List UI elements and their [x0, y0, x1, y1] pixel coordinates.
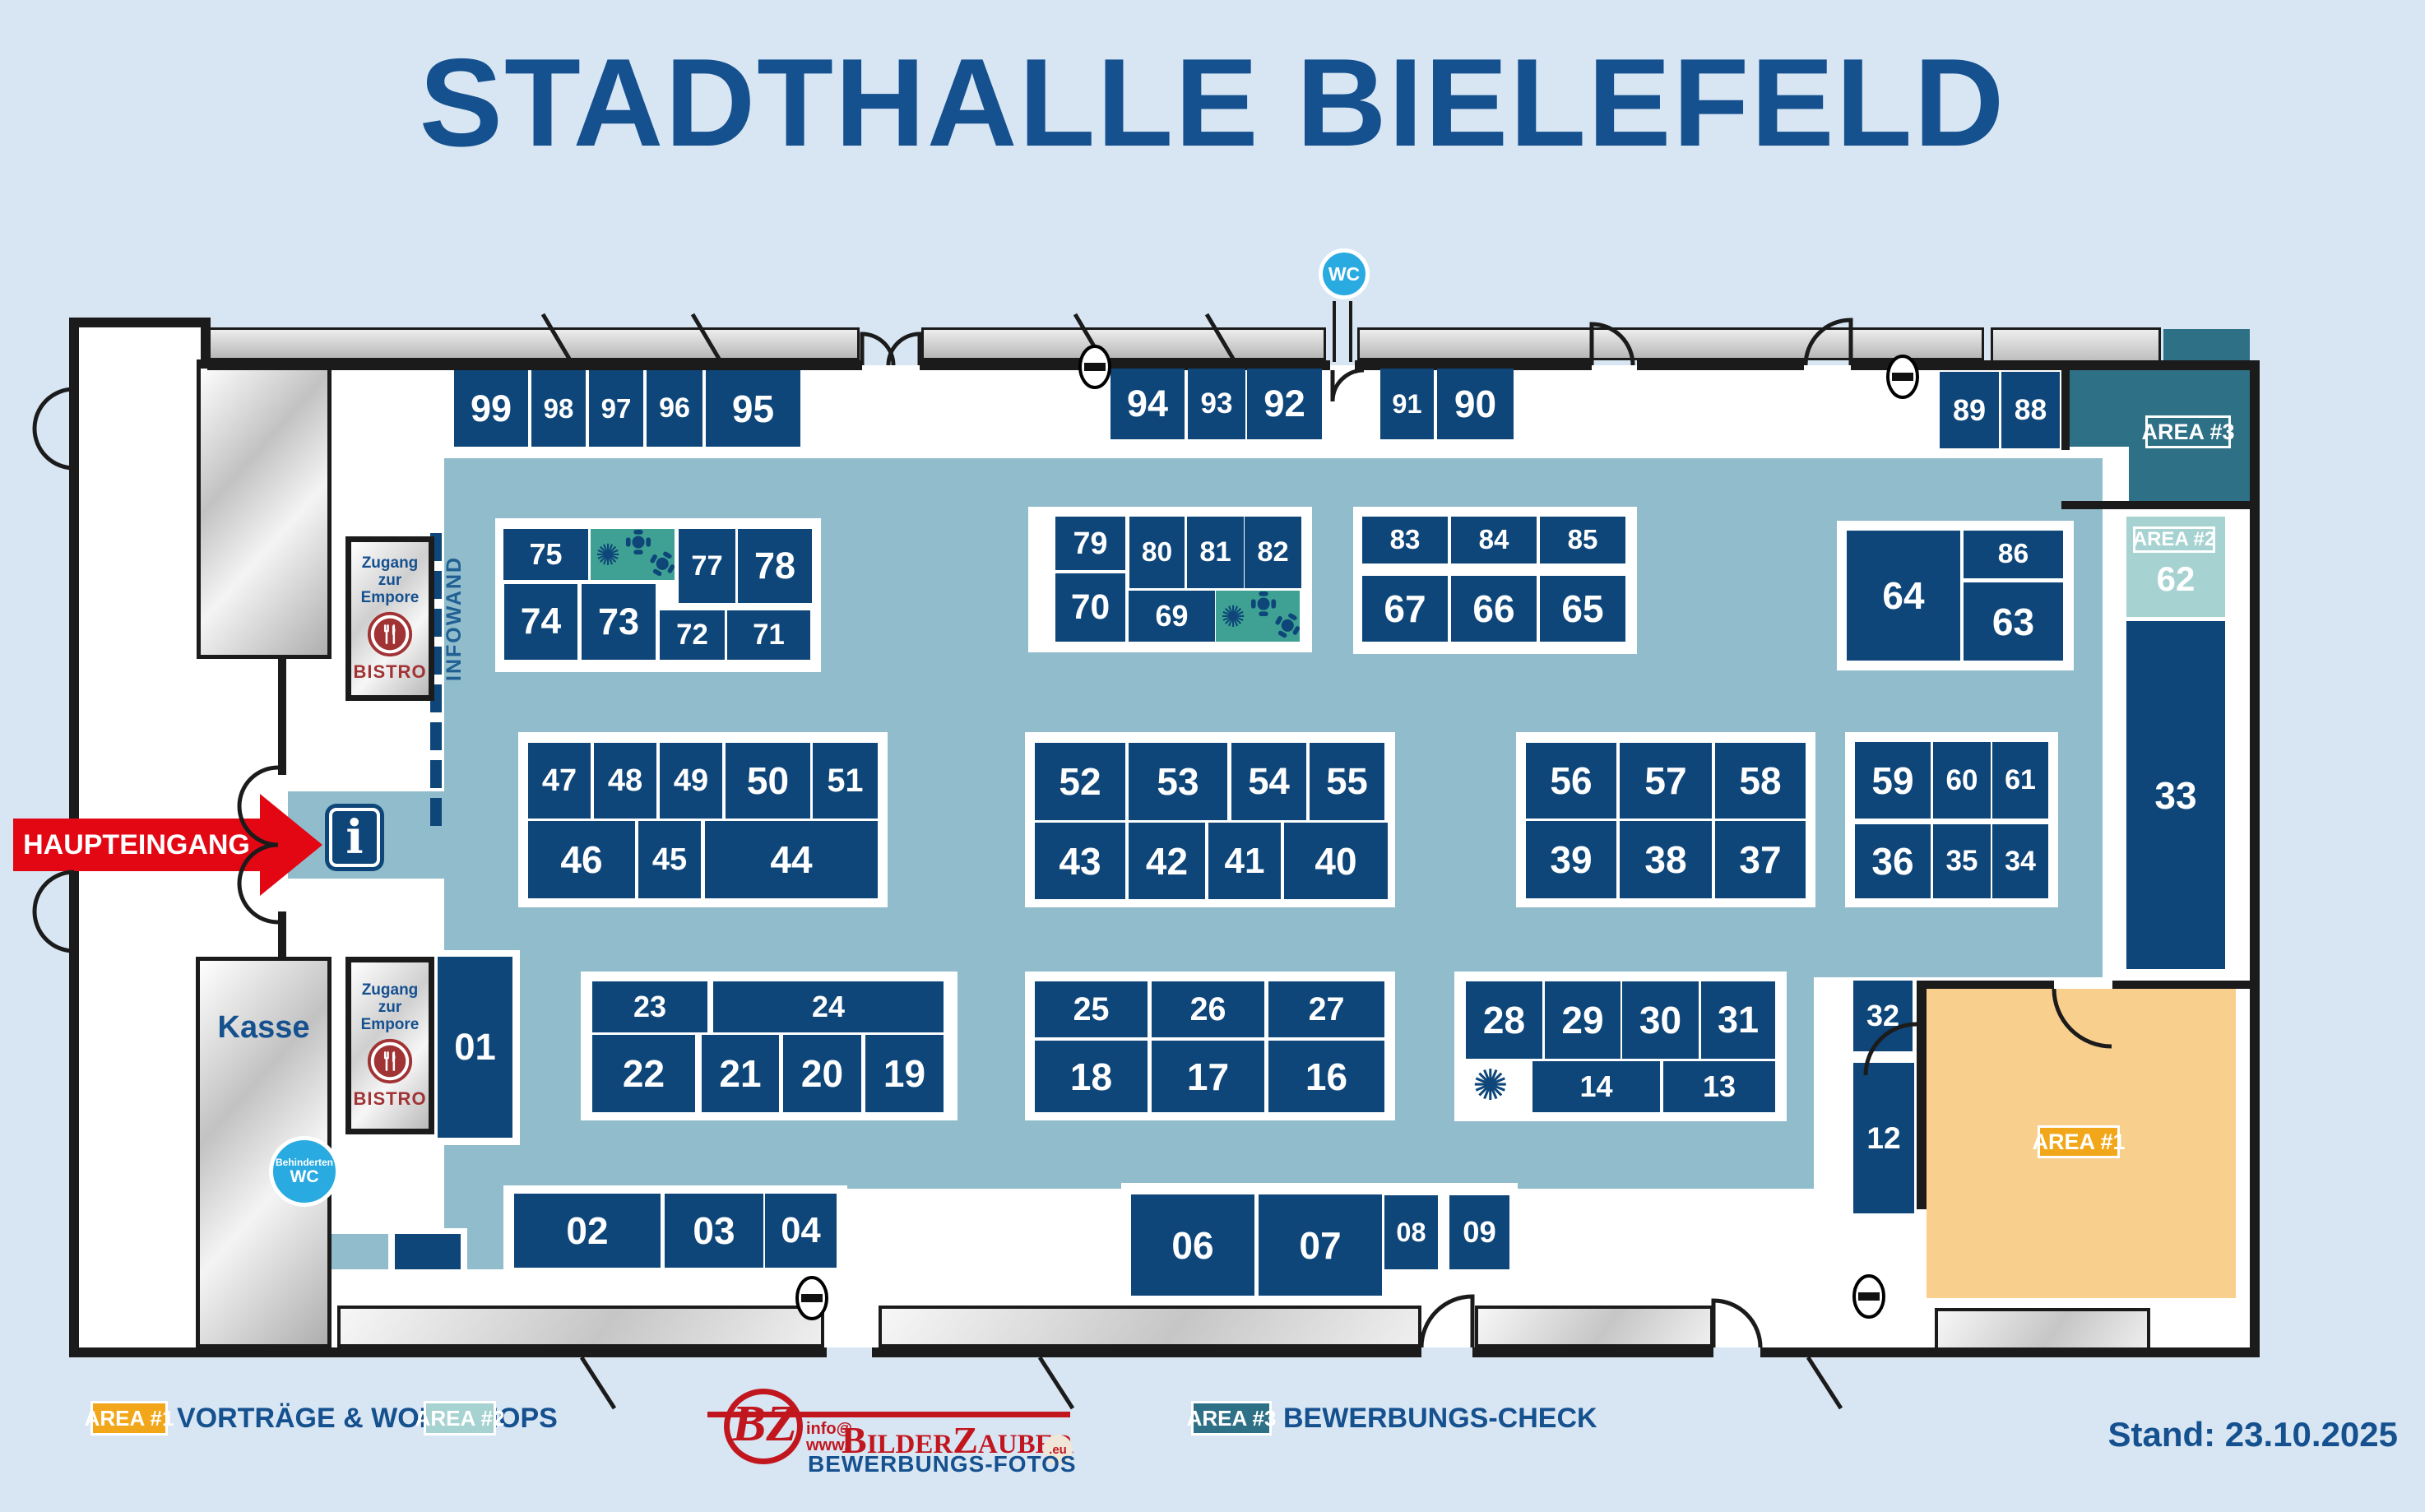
- booth-97: 97: [589, 370, 643, 447]
- booth-89: 89: [1940, 372, 1999, 448]
- infowand-segment: [430, 760, 442, 788]
- table-seating-icon: [625, 529, 651, 555]
- booth-59: 59: [1855, 742, 1931, 819]
- booth-49: 49: [660, 743, 722, 819]
- booth-95: 95: [706, 370, 800, 447]
- booth-45: 45: [638, 821, 701, 898]
- booth-69: 69: [1129, 591, 1215, 642]
- plant-icon: ✺: [1472, 1064, 1515, 1107]
- plant-icon: ✺: [596, 540, 620, 570]
- booth-14: 14: [1532, 1061, 1660, 1112]
- booth-01: 01: [438, 957, 512, 1138]
- booth-75: 75: [503, 529, 588, 580]
- booth-66: 66: [1451, 576, 1537, 642]
- booth-96: 96: [647, 370, 702, 447]
- booth-04: 04: [765, 1194, 837, 1268]
- booth-46: 46: [528, 821, 635, 898]
- zugang-empore-bistro-lower: Zugang zur Empore BISTRO: [345, 957, 434, 1134]
- booth-40: 40: [1284, 823, 1388, 899]
- booth-blank: [395, 1234, 461, 1269]
- booth-22: 22: [592, 1035, 695, 1112]
- bistro-icon: [366, 1037, 414, 1085]
- legend-area3-badge: AREA #3: [1191, 1401, 1272, 1435]
- booth-86: 86: [1964, 531, 2063, 578]
- table-seating-icon: [1250, 591, 1277, 617]
- booth-78: 78: [738, 529, 812, 603]
- bistro-label: BISTRO: [353, 661, 426, 683]
- booth-99: 99: [454, 370, 528, 447]
- infowand-label: INFOWAND: [443, 566, 466, 681]
- booth-37: 37: [1715, 821, 1806, 898]
- booth-84: 84: [1451, 517, 1537, 564]
- seating-area: ✺: [1216, 591, 1300, 642]
- booth-63: 63: [1964, 582, 2063, 661]
- booth-43: 43: [1035, 823, 1125, 899]
- zugang-label-line2: zur Empore: [351, 999, 429, 1033]
- booth-64: 64: [1847, 531, 1960, 661]
- booth-94: 94: [1110, 369, 1185, 439]
- booth-30: 30: [1622, 981, 1699, 1059]
- table-seating-icon-wrap: [1250, 591, 1277, 621]
- booth-88: 88: [2001, 372, 2060, 448]
- booth-85: 85: [1540, 517, 1625, 564]
- zugang-label-line1: Zugang: [362, 981, 419, 999]
- logo-rule: [707, 1412, 1070, 1417]
- info-point-icon: i: [325, 804, 384, 871]
- booth-23: 23: [592, 981, 707, 1032]
- zugang-label-line2: zur Empore: [351, 572, 429, 606]
- booth-31: 31: [1701, 981, 1775, 1059]
- booth-48: 48: [594, 743, 656, 819]
- haupteingang-arrow: HAUPTEINGANG: [13, 794, 326, 897]
- booth-52: 52: [1035, 743, 1125, 820]
- zugang-empore-bistro-upper: Zugang zur Empore BISTRO: [345, 536, 434, 701]
- accessible-wc-line2: WC: [290, 1168, 319, 1186]
- booth-47: 47: [528, 743, 591, 819]
- wc-label: WC: [1328, 263, 1360, 285]
- booth-02: 02: [514, 1194, 661, 1268]
- bistro-icon: [366, 610, 414, 658]
- table-seating-icon-wrap: [625, 529, 651, 559]
- info-letter: i: [345, 810, 363, 865]
- booth-55: 55: [1310, 743, 1384, 820]
- booth-03: 03: [665, 1194, 763, 1268]
- zugang-label-line1: Zugang: [362, 554, 419, 572]
- booth-82: 82: [1245, 517, 1301, 588]
- booth-51: 51: [813, 743, 878, 819]
- booth-12: 12: [1853, 1063, 1914, 1213]
- booth-33: 33: [2126, 621, 2225, 969]
- booth-41: 41: [1208, 823, 1281, 899]
- booth-16: 16: [1268, 1041, 1384, 1112]
- booth-56: 56: [1526, 743, 1616, 819]
- booth-73: 73: [582, 584, 656, 660]
- plant-icon: ✺: [1221, 602, 1245, 632]
- booth-83: 83: [1362, 517, 1448, 564]
- booth-24: 24: [713, 981, 944, 1032]
- booth-74: 74: [504, 584, 577, 660]
- booth-17: 17: [1152, 1041, 1264, 1112]
- booth-20: 20: [783, 1035, 861, 1112]
- booth-61: 61: [1992, 742, 2048, 819]
- booth-13: 13: [1663, 1061, 1775, 1112]
- booth-25: 25: [1035, 981, 1148, 1037]
- booth-18: 18: [1035, 1041, 1148, 1112]
- booth-58: 58: [1715, 743, 1806, 819]
- legend-area2-badge: AREA #2: [424, 1401, 496, 1435]
- booth-27: 27: [1268, 981, 1384, 1037]
- booth-67: 67: [1362, 576, 1448, 642]
- booth-08: 08: [1384, 1195, 1438, 1269]
- booth-93: 93: [1188, 369, 1245, 439]
- booth-77: 77: [679, 529, 735, 603]
- bilderzauber-logo: BZ info@ www. BILDERZAUBER .eu BEWERBUNG…: [707, 1384, 1094, 1474]
- bistro-label: BISTRO: [353, 1088, 426, 1110]
- booth-50: 50: [726, 743, 810, 819]
- booth-21: 21: [702, 1035, 779, 1112]
- booth-80: 80: [1129, 517, 1185, 588]
- booth-38: 38: [1620, 821, 1712, 898]
- arrow-head: [260, 794, 322, 896]
- booth-91: 91: [1380, 369, 1434, 439]
- booth-layer: 9998979695949392919089887577787473727179…: [0, 0, 2425, 1512]
- booth-34: 34: [1992, 824, 2048, 898]
- booth-28: 28: [1466, 981, 1542, 1059]
- booth-65: 65: [1540, 576, 1625, 642]
- booth-92: 92: [1247, 369, 1322, 439]
- booth-54: 54: [1231, 743, 1306, 820]
- booth-26: 26: [1152, 981, 1264, 1037]
- haupteingang-label: HAUPTEINGANG: [13, 819, 260, 871]
- accessible-wc-icon: Behinderten WC: [269, 1136, 340, 1207]
- legend-area1-badge: AREA #1: [90, 1401, 168, 1435]
- booth-79: 79: [1055, 517, 1125, 570]
- logo-initials: BZ: [732, 1395, 797, 1454]
- booth-70: 70: [1055, 573, 1125, 642]
- booth-44: 44: [705, 821, 878, 898]
- booth-53: 53: [1129, 743, 1227, 820]
- booth-09: 09: [1449, 1195, 1509, 1269]
- infowand-segment: [430, 798, 442, 826]
- infowand-segment: [430, 722, 442, 750]
- booth-71: 71: [727, 610, 810, 660]
- wc-icon: WC: [1319, 248, 1370, 299]
- booth-32: 32: [1853, 981, 1913, 1051]
- floorplan: STADTHALLE BIELEFELD AREA #1 AREA #3 ARE…: [0, 0, 2425, 1512]
- legend-area3-label: BEWERBUNGS-CHECK: [1283, 1401, 1597, 1435]
- booth-35: 35: [1933, 824, 1991, 898]
- booth-81: 81: [1187, 517, 1244, 588]
- stand-date: Stand: 23.10.2025: [1974, 1415, 2398, 1454]
- booth-39: 39: [1526, 821, 1616, 898]
- booth-07: 07: [1259, 1194, 1382, 1296]
- booth-42: 42: [1129, 823, 1205, 899]
- booth-98: 98: [531, 370, 586, 447]
- accessible-wc-line1: Behinderten: [276, 1157, 333, 1168]
- booth-29: 29: [1545, 981, 1621, 1059]
- booth-90: 90: [1437, 369, 1514, 439]
- booth-19: 19: [865, 1035, 944, 1112]
- booth-06: 06: [1131, 1194, 1254, 1296]
- booth-36: 36: [1855, 824, 1931, 898]
- booth-57: 57: [1620, 743, 1712, 819]
- seating-area: ✺: [591, 529, 675, 580]
- logo-tagline: BEWERBUNGS-FOTOS: [808, 1451, 1077, 1477]
- booth-72: 72: [660, 610, 725, 660]
- booth-60: 60: [1933, 742, 1991, 819]
